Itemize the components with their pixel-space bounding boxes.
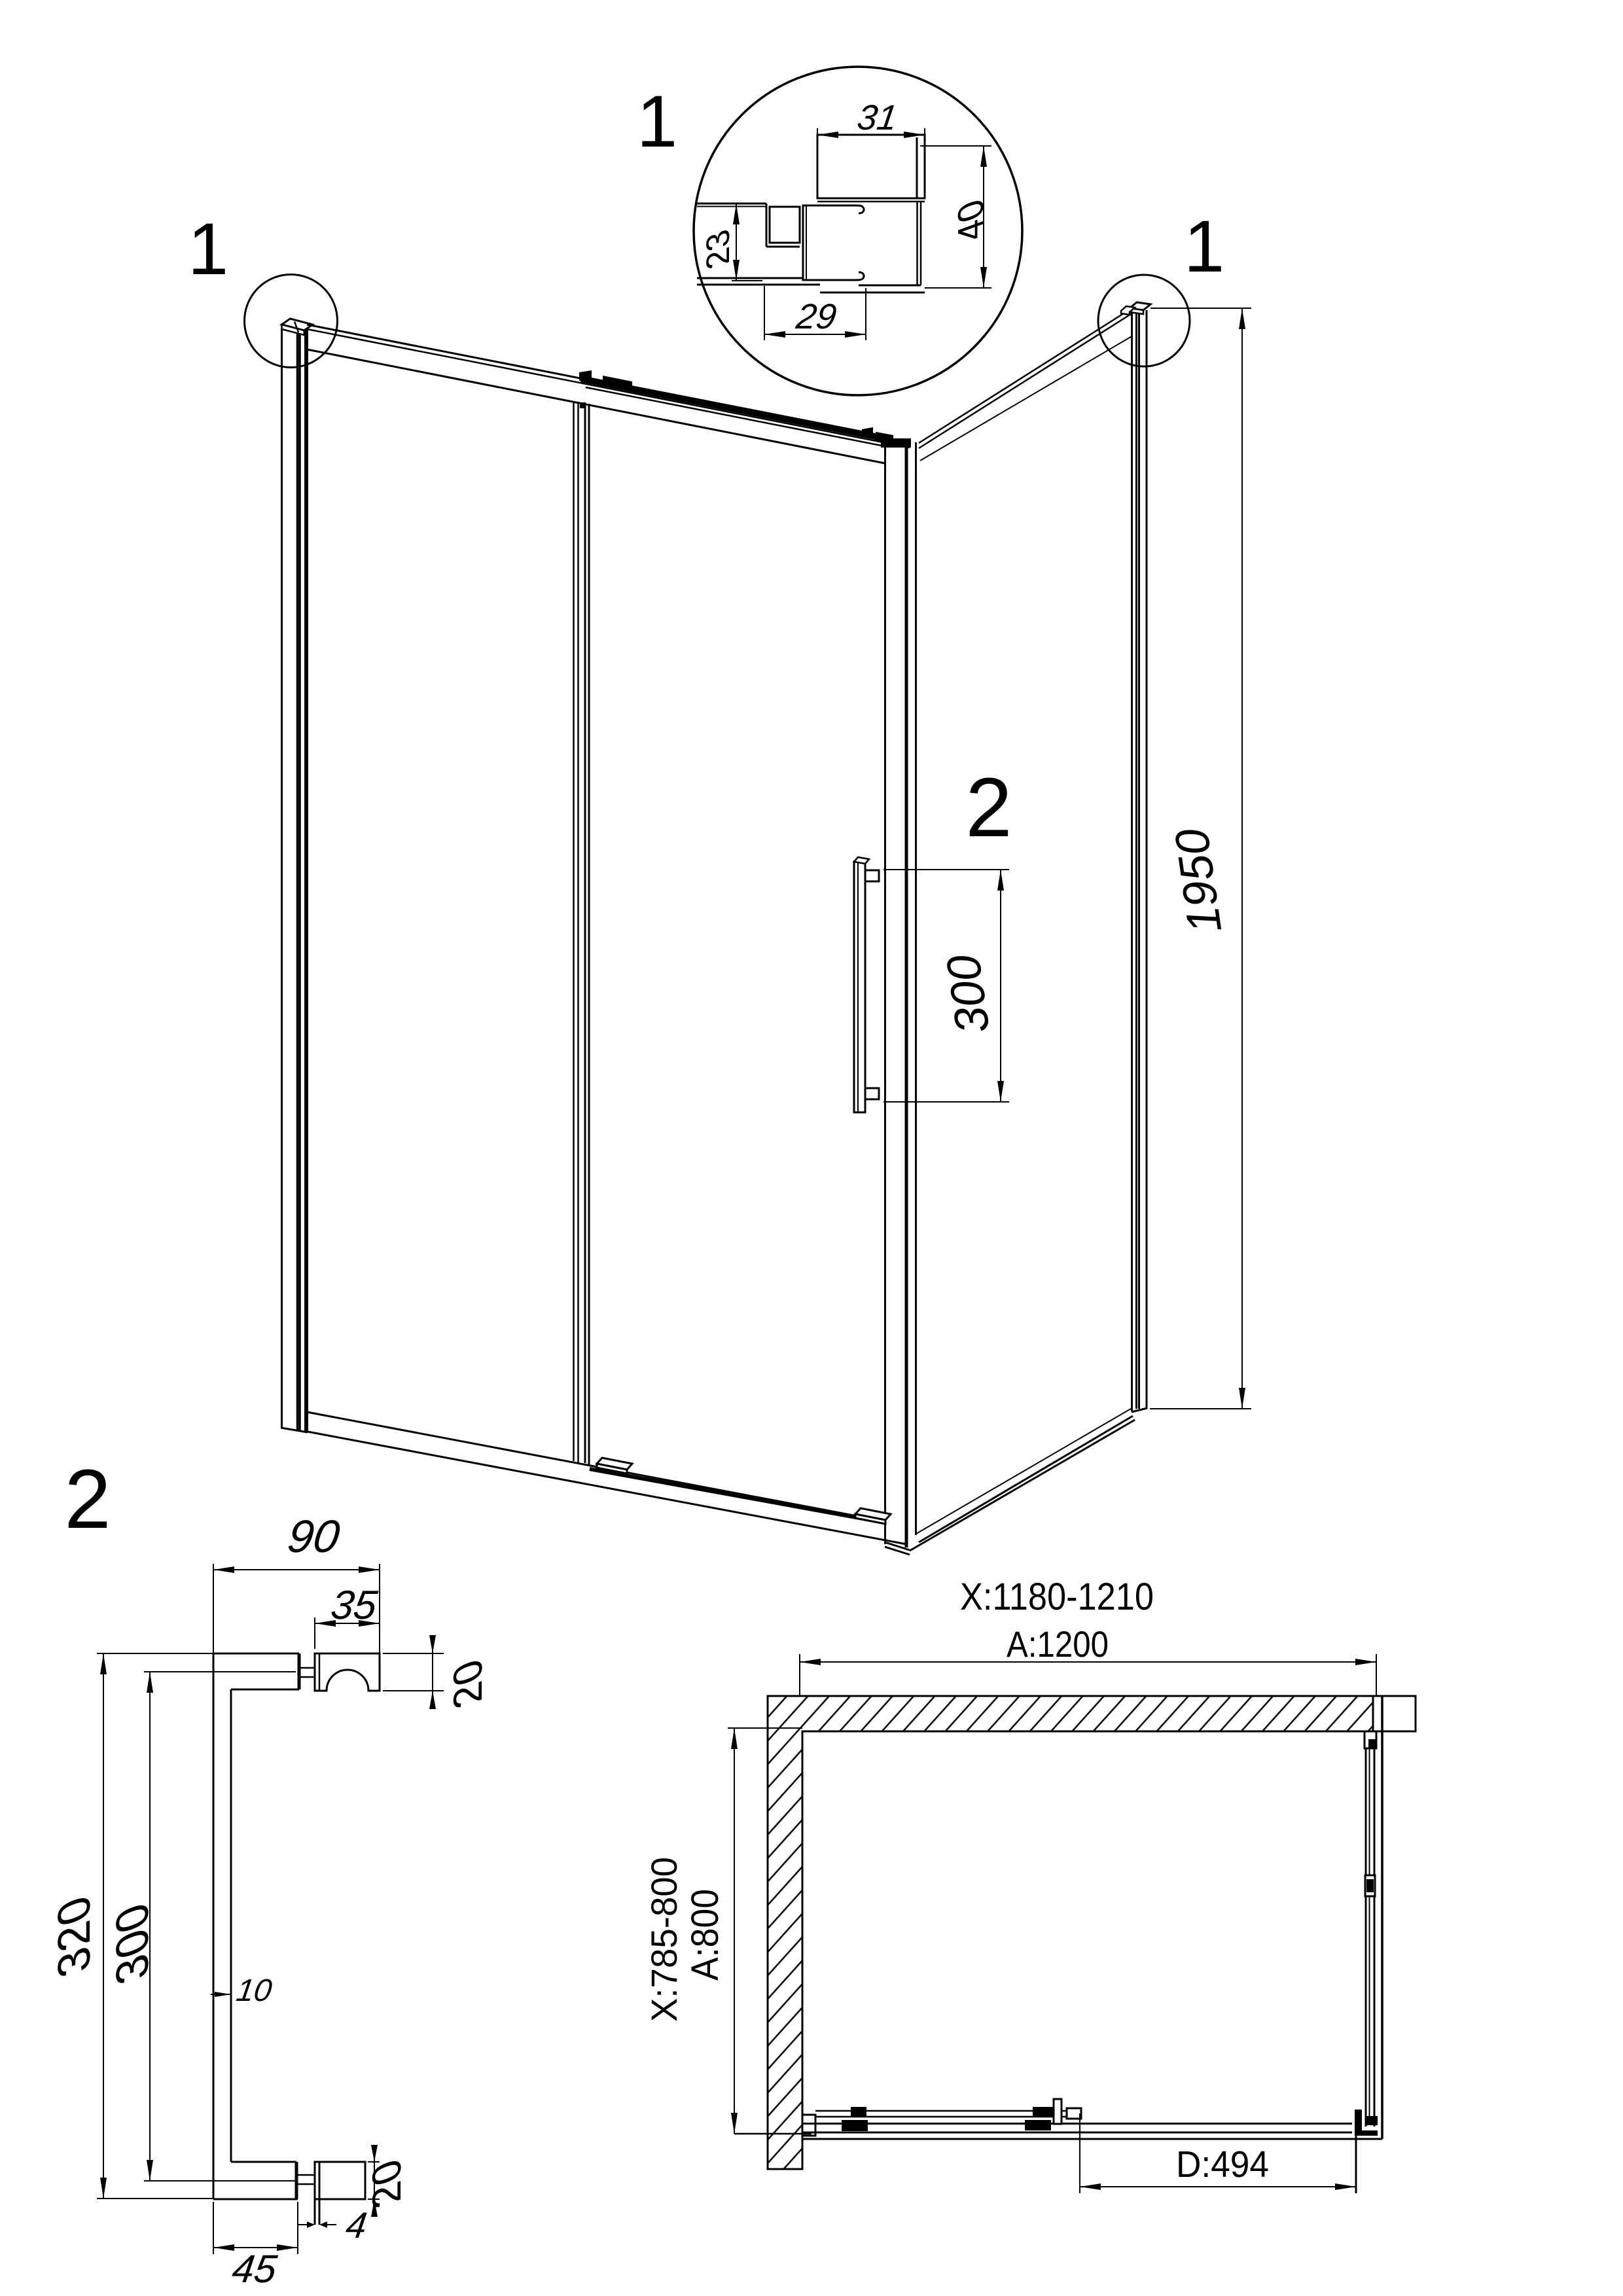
svg-text:35: 35 [329,1583,380,1628]
svg-text:1: 1 [1184,205,1224,287]
svg-text:1: 1 [188,208,228,290]
svg-text:A:800: A:800 [684,1889,726,1981]
svg-text:X:785-800: X:785-800 [643,1857,685,2022]
svg-text:29: 29 [793,297,838,336]
svg-text:1: 1 [637,80,677,162]
svg-text:10: 10 [234,1973,274,2008]
svg-text:90: 90 [285,1510,343,1562]
svg-text:2: 2 [965,761,1012,855]
svg-text:300: 300 [937,951,1000,1036]
svg-text:45: 45 [230,2246,280,2291]
svg-text:D:494: D:494 [1176,2144,1269,2185]
svg-text:X:1180-1210: X:1180-1210 [960,1576,1154,1618]
svg-text:2: 2 [64,1453,111,1546]
svg-text:A:1200: A:1200 [1007,1623,1109,1665]
svg-text:31: 31 [855,98,899,137]
